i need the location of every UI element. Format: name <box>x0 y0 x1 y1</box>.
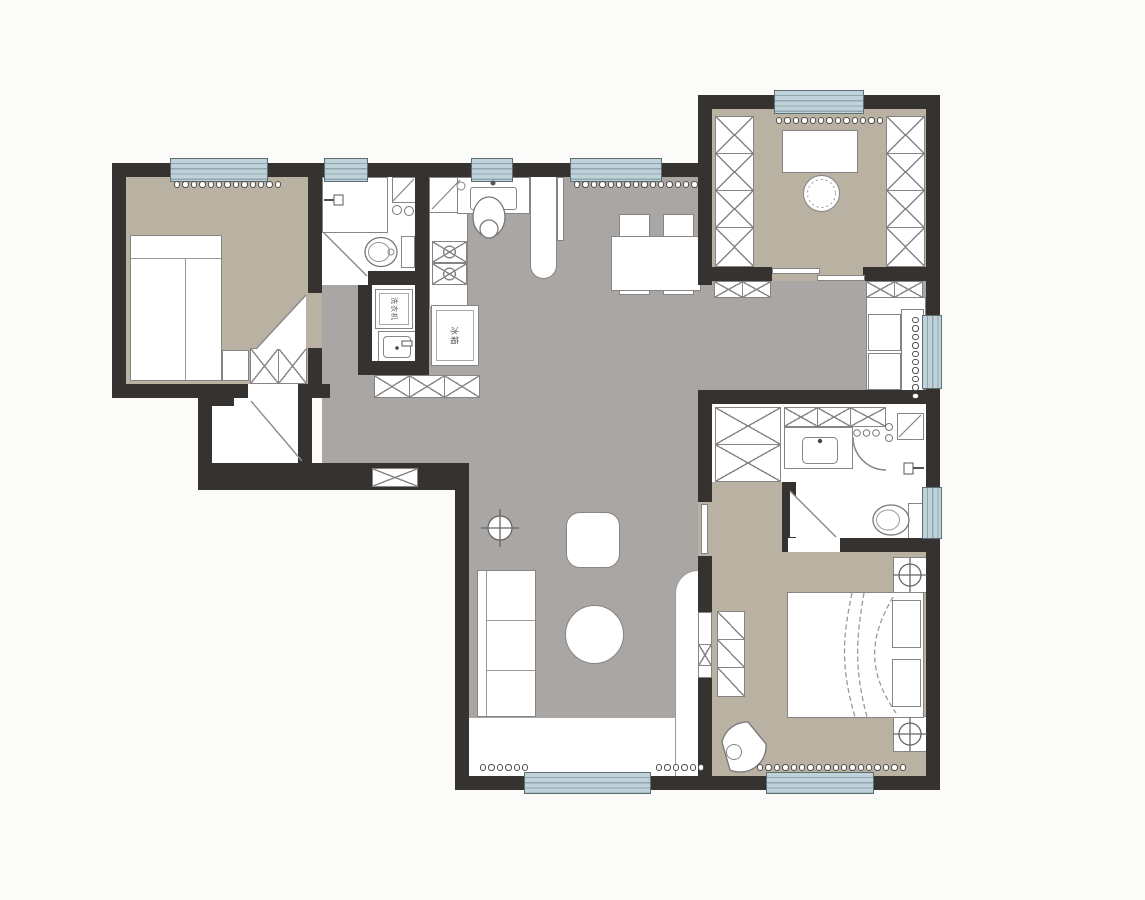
curtain-dot <box>250 181 256 187</box>
curtain-dot <box>633 181 639 187</box>
curtain-dot <box>912 325 918 331</box>
bed-single <box>130 235 222 381</box>
curtain-dot <box>582 181 588 187</box>
master-bedroom-entry-floor <box>712 482 782 538</box>
window <box>170 158 268 182</box>
wall <box>782 482 796 538</box>
curtain-dot <box>673 764 679 770</box>
curtain-dot <box>784 117 790 123</box>
study-wardrobe-right-cell <box>886 190 925 228</box>
curtain-dot <box>824 764 830 770</box>
bed-center-line <box>185 259 186 380</box>
curtain-dot <box>488 764 494 770</box>
bedroom-left-doorway-floor <box>308 293 322 348</box>
curtain-dot <box>199 181 205 187</box>
wall <box>455 463 469 790</box>
wall <box>198 463 469 490</box>
curtain-dot <box>841 764 847 770</box>
window <box>766 772 874 794</box>
tea-stool <box>868 353 901 390</box>
kitchen-low-cabinet-cell <box>409 375 445 398</box>
curtain-dot <box>833 764 839 770</box>
curtain-dot <box>514 764 520 770</box>
curtain-dot <box>912 359 918 365</box>
washing-machine-label: 洗衣机 <box>389 297 399 321</box>
curtain-dot <box>208 181 214 187</box>
curtain-dot <box>874 764 880 770</box>
curtain-dots-tea-window <box>911 317 920 387</box>
curtain-dot <box>599 181 605 187</box>
round-table <box>565 605 624 664</box>
wall <box>212 390 234 406</box>
wall <box>298 398 312 463</box>
refrigerator: 冰箱 <box>431 305 479 366</box>
sliding-door-study-panel <box>817 275 865 281</box>
curtain-dot <box>698 764 704 770</box>
bed-pillow <box>892 600 921 648</box>
stove-burner <box>432 241 467 263</box>
wardrobe-left-bedroom-cell <box>278 348 307 384</box>
curtain-dot <box>505 764 511 770</box>
curtain-dot <box>182 181 188 187</box>
curtain-dot <box>691 181 697 187</box>
curtain-dot <box>522 764 528 770</box>
wall <box>782 538 788 552</box>
sliding-door-study-panel <box>772 268 820 274</box>
entry-vestibule-floor <box>212 398 298 463</box>
curtain-dot <box>900 764 906 770</box>
wall <box>308 163 322 293</box>
corner-shelf-bathroom-right <box>897 413 924 440</box>
window <box>471 158 513 182</box>
bedroom-shelf-cell <box>717 667 745 697</box>
wall <box>298 384 330 398</box>
toilet-tank-top <box>401 236 415 268</box>
curtain-dot <box>616 181 622 187</box>
curtain-dot <box>666 181 672 187</box>
curtain-dot <box>690 764 696 770</box>
curtain-dot <box>497 764 503 770</box>
curtain-dot <box>174 181 180 187</box>
curtain-dot <box>801 117 807 123</box>
kitchen-sink-basin <box>470 187 517 210</box>
study-stool <box>803 175 840 212</box>
wall <box>698 267 772 281</box>
kitchen-island-edge <box>557 177 564 241</box>
wall <box>698 390 712 502</box>
sofa-cushion-line <box>487 620 535 621</box>
study-wardrobe-right-cell <box>886 153 925 191</box>
study-wardrobe-right-cell <box>886 227 925 267</box>
curtain-dot <box>480 764 486 770</box>
bathroom-vanity-sink <box>802 437 838 464</box>
curtain-dots-left-bedroom <box>174 180 266 189</box>
curtain-dot <box>860 117 866 123</box>
sliding-door-bedroom-panel <box>701 504 708 554</box>
study-wardrobe-left-cell <box>715 190 754 228</box>
floor-plan: 洗衣机 冰箱 <box>0 0 1145 900</box>
sofa <box>477 570 536 717</box>
corner-shelf-bathroom-top <box>392 177 416 203</box>
bathroom-upper-cabinet-cell <box>817 407 851 427</box>
nightstand-master-bottom <box>893 716 927 752</box>
dining-table <box>611 236 701 291</box>
curtain-dot <box>826 117 832 123</box>
curtain-dot <box>191 181 197 187</box>
laundry-basin-bowl <box>383 336 411 358</box>
coffee-table <box>566 512 620 568</box>
wall <box>308 348 322 384</box>
vestibule-doorway-floor <box>248 384 298 398</box>
curtain-dot <box>866 764 872 770</box>
tea-cabinet-right-cell <box>894 281 923 298</box>
wall <box>358 361 429 375</box>
curtain-dot <box>793 117 799 123</box>
window <box>922 487 942 539</box>
bedroom-shelf-cell <box>717 639 745 668</box>
bathroom-upper-cabinet-cell <box>850 407 886 427</box>
curtain-dot <box>275 181 281 187</box>
wall <box>863 267 940 281</box>
laundry-basin <box>378 331 416 362</box>
tea-stool <box>868 314 901 351</box>
toilet-tank-right <box>908 503 923 539</box>
curtain-dots-master-bedroom <box>757 763 887 772</box>
refrigerator-label-box: 冰箱 <box>436 310 474 361</box>
window <box>524 772 651 794</box>
curtain-dot <box>877 117 883 123</box>
curtain-dot <box>912 384 918 390</box>
nightstand-left-bedroom <box>222 350 249 381</box>
curtain-dot <box>765 764 771 770</box>
curtain-dot <box>818 117 824 123</box>
curtain-dot <box>258 181 264 187</box>
sofa-backrest <box>478 571 487 716</box>
curtain-dot <box>799 764 805 770</box>
curtain-dot <box>224 181 230 187</box>
bed-pillow <box>892 659 921 707</box>
bathroom-right-doorway-floor <box>788 538 840 552</box>
curtain-dots-living-right <box>656 763 696 772</box>
curtain-dot <box>776 117 782 123</box>
bathroom-wardrobe-cell <box>715 444 781 482</box>
study-desk <box>782 130 858 173</box>
shower-tray <box>322 177 388 233</box>
curtain-dot <box>675 181 681 187</box>
wall-duct-box <box>372 468 418 487</box>
tea-cabinet-left-cell <box>714 281 743 298</box>
window <box>922 315 942 389</box>
curtain-dot <box>891 764 897 770</box>
curtain-dot <box>216 181 222 187</box>
bed-headboard <box>131 236 221 259</box>
curtain-dot <box>912 393 918 399</box>
study-wardrobe-right-cell <box>886 116 925 154</box>
kitchen-low-cabinet-cell <box>374 375 410 398</box>
curtain-dots-living-left <box>480 763 520 772</box>
bedroom-shelf-cell <box>717 611 745 640</box>
curtain-dot <box>574 181 580 187</box>
study-wardrobe-left-cell <box>715 116 754 154</box>
wall <box>698 390 926 404</box>
curtain-dot <box>912 317 918 323</box>
curtain-dot <box>849 764 855 770</box>
stove-burner <box>432 263 467 285</box>
window <box>774 90 864 114</box>
curtain-dot <box>835 117 841 123</box>
wall-duct-box <box>698 644 712 666</box>
curtain-dot <box>912 376 918 382</box>
curtain-dot <box>266 181 272 187</box>
curtain-dot <box>608 181 614 187</box>
wall <box>698 95 712 285</box>
curtain-dot <box>912 334 918 340</box>
curtain-dot <box>658 181 664 187</box>
wardrobe-left-bedroom-cell <box>250 348 279 384</box>
curtain-dot <box>650 181 656 187</box>
study-wardrobe-left-cell <box>715 227 754 267</box>
wall <box>198 384 212 463</box>
curtain-dot <box>858 764 864 770</box>
curtain-dot <box>807 764 813 770</box>
nightstand-master-top <box>893 557 927 593</box>
tea-cabinet-right-cell <box>866 281 895 298</box>
curtain-dot <box>757 764 763 770</box>
hall-connector-floor <box>698 285 712 390</box>
curtain-dot <box>624 181 630 187</box>
curtain-dot <box>852 117 858 123</box>
curtain-dots-study <box>776 116 868 125</box>
washing-machine-label-box: 洗衣机 <box>379 293 409 325</box>
curtain-dots-dining <box>574 180 680 189</box>
curtain-dot <box>883 764 889 770</box>
bathroom-wardrobe-cell <box>715 407 781 445</box>
window <box>570 158 662 182</box>
curtain-dot <box>656 764 662 770</box>
sofa-cushion-line <box>487 670 535 671</box>
bathroom-upper-cabinet-cell <box>784 407 818 427</box>
bathroom-top-doorway-floor <box>322 271 368 285</box>
curtain-dot <box>816 764 822 770</box>
study-wardrobe-left-cell <box>715 153 754 191</box>
wall <box>926 95 940 790</box>
window <box>324 158 368 182</box>
wall <box>112 163 126 398</box>
curtain-dot <box>810 117 816 123</box>
curtain-dot <box>912 351 918 357</box>
washing-machine: 洗衣机 <box>375 289 413 329</box>
wall <box>415 163 429 375</box>
curtain-dot <box>641 181 647 187</box>
curtain-dot <box>912 367 918 373</box>
wall <box>840 538 926 552</box>
wall <box>368 271 429 285</box>
refrigerator-label: 冰箱 <box>449 326 461 345</box>
curtain-dot <box>912 342 918 348</box>
living-walkway <box>675 570 698 776</box>
curtain-dot <box>681 764 687 770</box>
curtain-dot <box>782 764 788 770</box>
curtain-dot <box>241 181 247 187</box>
kitchen-island <box>530 175 557 279</box>
tea-cabinet-left-cell <box>742 281 771 298</box>
curtain-dot <box>774 764 780 770</box>
curtain-dot <box>664 764 670 770</box>
kitchen-low-cabinet-cell <box>444 375 480 398</box>
curtain-dot <box>868 117 874 123</box>
curtain-dot <box>791 764 797 770</box>
curtain-dot <box>233 181 239 187</box>
curtain-dot <box>843 117 849 123</box>
curtain-dot <box>591 181 597 187</box>
